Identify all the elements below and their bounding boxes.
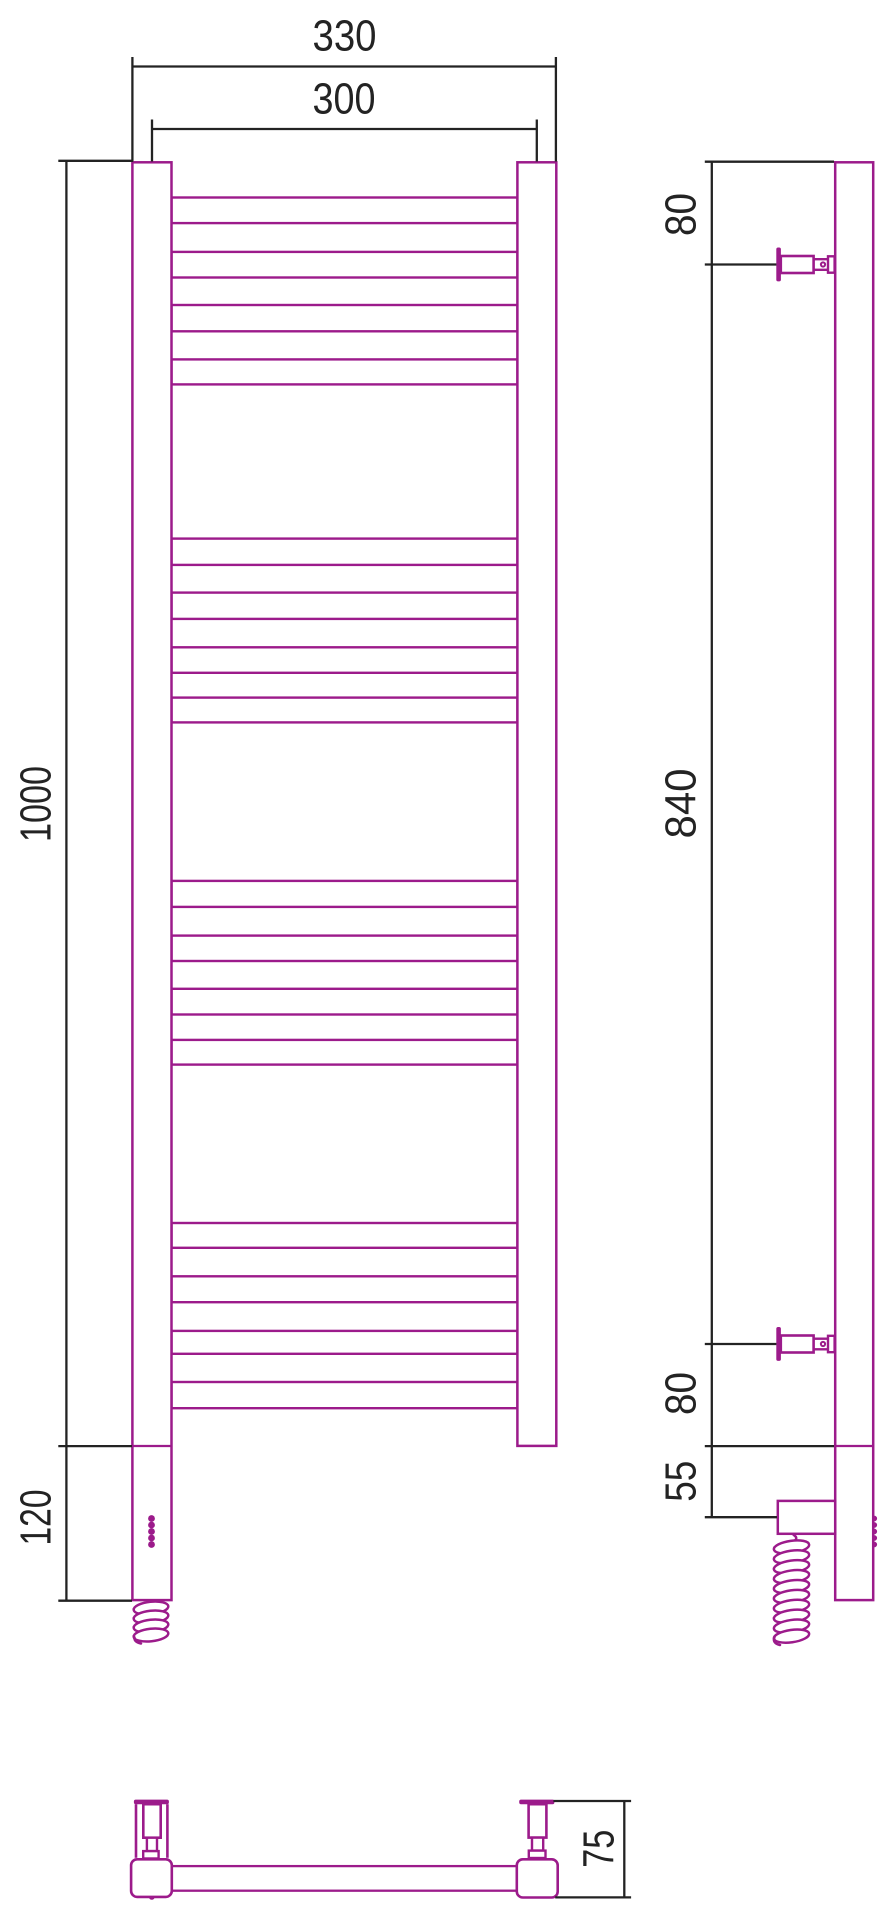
- svg-text:75: 75: [575, 1830, 624, 1868]
- svg-text:55: 55: [657, 1461, 706, 1502]
- svg-text:330: 330: [313, 12, 377, 61]
- svg-text:120: 120: [12, 1490, 61, 1546]
- svg-text:840: 840: [657, 769, 706, 839]
- svg-text:300: 300: [313, 74, 376, 123]
- svg-text:1000: 1000: [12, 766, 61, 842]
- svg-text:80: 80: [657, 1372, 706, 1415]
- svg-text:80: 80: [657, 193, 706, 236]
